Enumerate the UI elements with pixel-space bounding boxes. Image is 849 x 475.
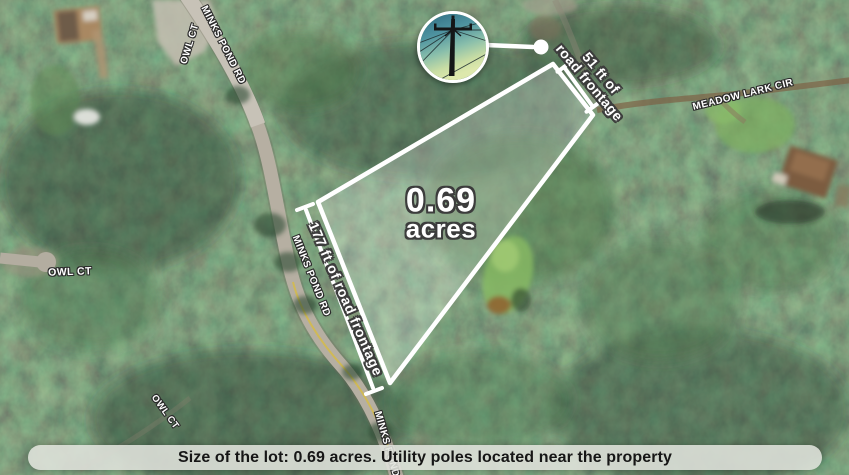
property-aerial-map: 0.69 acres 177 ft of road frontage 51 ft…: [0, 0, 849, 475]
lot-area-value: 0.69: [406, 186, 476, 217]
lot-area-unit: acres: [406, 217, 476, 241]
lot-summary-text: Size of the lot: 0.69 acres. Utility pol…: [178, 449, 672, 467]
pole-location-dot: [534, 40, 549, 55]
utility-pole-inset: [417, 11, 489, 83]
lot-area-label: 0.69 acres: [406, 186, 476, 241]
utility-pole-icon: [420, 14, 486, 80]
callout-connector-line: [486, 45, 533, 47]
road-label-owl-ct-mid: OWL CT: [48, 265, 92, 279]
lot-summary-bar: Size of the lot: 0.69 acres. Utility pol…: [28, 445, 822, 470]
road-owl-ct-mid: [0, 258, 40, 262]
